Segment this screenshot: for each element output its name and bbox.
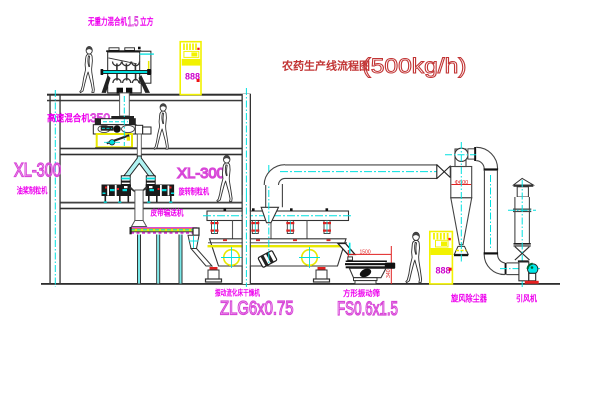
svg-text:ZLG6x0.75: ZLG6x0.75	[220, 298, 294, 320]
svg-text:振动流化床干燥机: 振动流化床干燥机	[215, 288, 261, 298]
svg-text:高速混合机: 高速混合机	[47, 113, 90, 125]
svg-text:XL-300: XL-300	[14, 160, 61, 182]
svg-text:XL-300: XL-300	[177, 165, 225, 182]
svg-text:皮带输送机: 皮带输送机	[150, 208, 184, 218]
svg-text:FS0.6x1.5: FS0.6x1.5	[337, 298, 398, 320]
svg-text:农药生产线流程图: 农药生产线流程图	[281, 59, 370, 73]
svg-text:888: 888	[436, 265, 451, 275]
svg-text:340: 340	[386, 269, 392, 278]
svg-text:油桨制粒机: 油桨制粒机	[17, 185, 48, 196]
svg-text:无重力混合机: 无重力混合机	[87, 16, 127, 28]
svg-text:方形振动筛: 方形振动筛	[343, 288, 380, 298]
svg-text:旋风除尘器: 旋风除尘器	[450, 293, 488, 304]
svg-text:(500kg/h): (500kg/h)	[363, 54, 467, 78]
svg-text:1.5: 1.5	[128, 14, 139, 29]
svg-text:1500: 1500	[360, 250, 371, 256]
svg-text:旋转制粒机: 旋转制粒机	[178, 186, 209, 197]
svg-text:立方: 立方	[140, 16, 154, 28]
svg-text:引风机: 引风机	[516, 293, 537, 304]
